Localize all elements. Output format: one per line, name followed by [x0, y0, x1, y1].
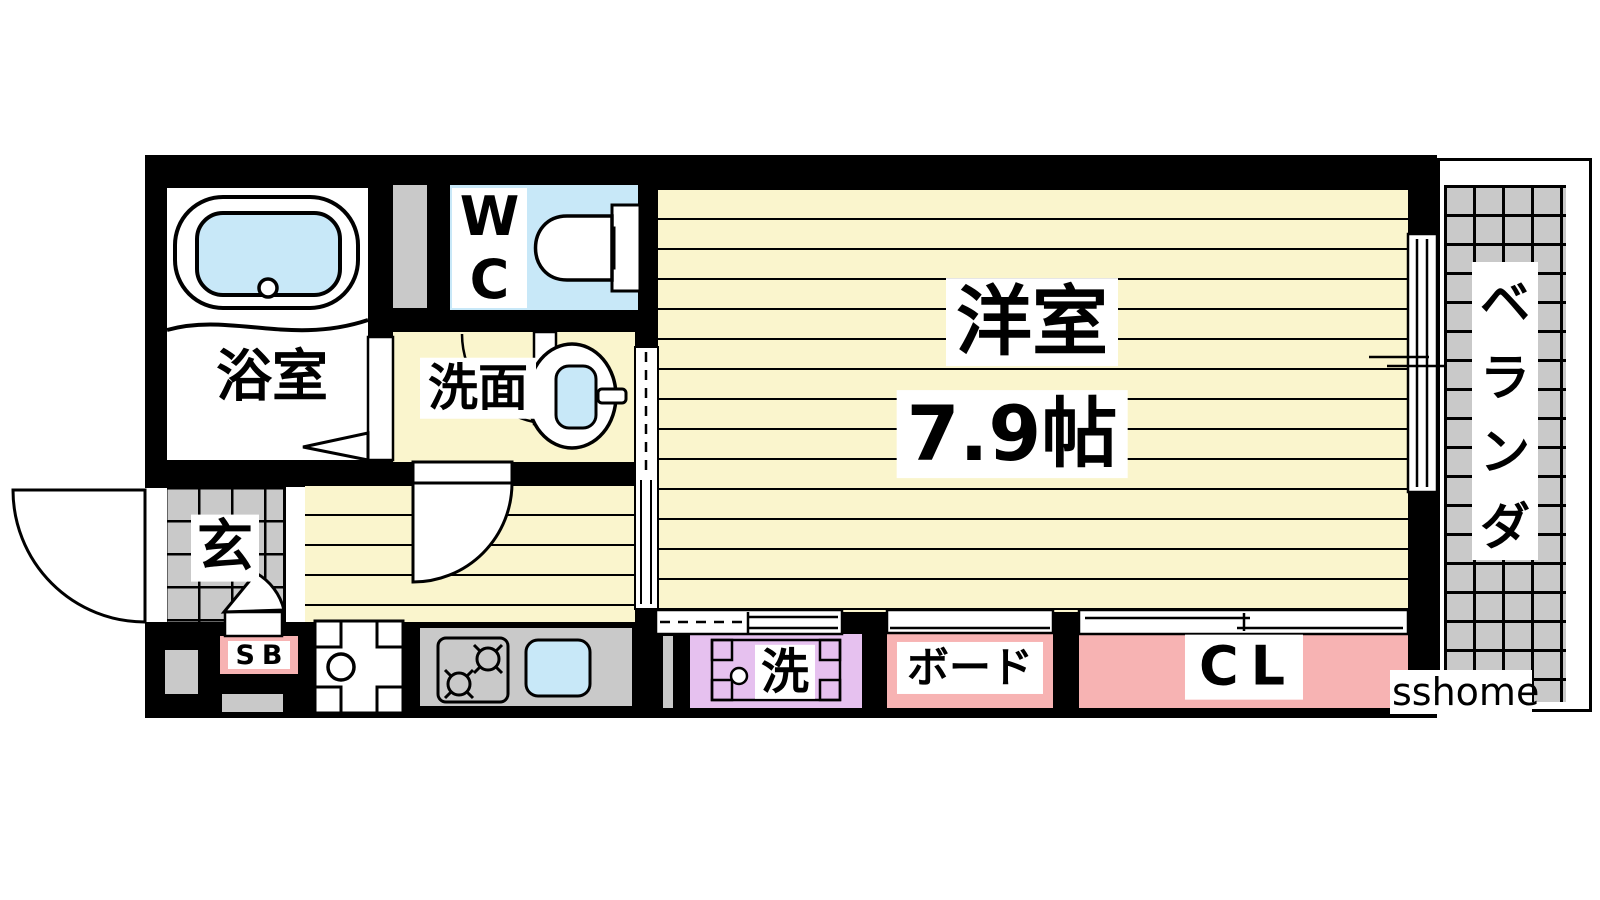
wc-label-box: W C [452, 188, 527, 308]
floor-plan: SB [0, 0, 1600, 900]
board-label: ボード [897, 642, 1043, 694]
veranda-label-char4: ダ [1480, 487, 1530, 559]
veranda-label-char2: ラ [1480, 338, 1530, 410]
washer-pan-icon [315, 621, 403, 713]
main-room-label: 洋室 [946, 278, 1118, 366]
closet-label: CL [1185, 635, 1303, 700]
laundry-sliding-door-icon [656, 610, 842, 634]
bathroom-label: 浴室 [208, 345, 336, 412]
watermark-text: sshome [1390, 670, 1539, 714]
veranda-label-box: ベ ラ ン ダ [1472, 262, 1538, 560]
kitchen-sink-icon [526, 640, 590, 696]
toilet-icon [536, 205, 641, 291]
stove-icon [438, 638, 508, 702]
laundry-label: 洗 [755, 645, 815, 699]
washroom-label: 洗面 [420, 358, 536, 419]
watermark: sshome [1390, 670, 1532, 714]
main-room-sliding-door-icon [635, 347, 658, 609]
fixtures-overlay [0, 0, 1600, 900]
veranda-label-char3: ン [1480, 412, 1530, 484]
entrance-label: 玄 [191, 515, 259, 582]
main-room-size-label: 7.9帖 [897, 390, 1128, 478]
entrance-door-icon [13, 490, 145, 622]
shoebox-door-icon [224, 573, 284, 636]
board-door-icon [887, 610, 1053, 633]
closet-sliding-door-icon [1079, 610, 1408, 634]
bathtub-icon [167, 197, 368, 330]
wc-label-w: W [460, 185, 520, 248]
veranda-window-icon [1369, 234, 1447, 492]
veranda-label-char1: ベ [1480, 263, 1530, 335]
washroom-door-icon [413, 462, 512, 582]
washbasin-icon [528, 344, 626, 448]
wc-label-c: C [470, 248, 510, 311]
